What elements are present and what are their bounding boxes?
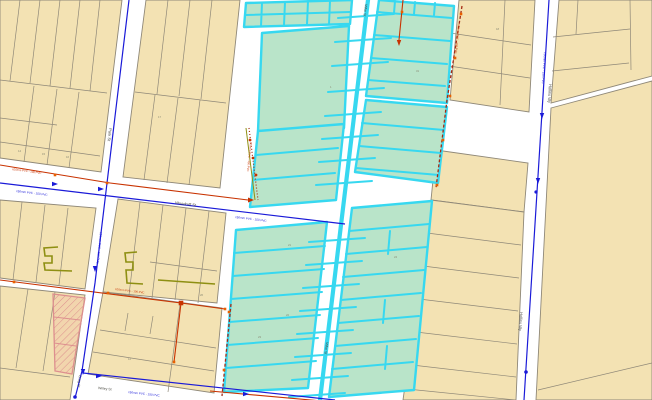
lot-number: 26	[200, 293, 204, 297]
valve-marker	[106, 182, 109, 185]
valve-marker	[436, 184, 439, 187]
valve-marker	[13, 281, 16, 284]
hydrant-marker	[255, 174, 258, 177]
valve-marker	[173, 361, 176, 364]
lot-number: 21	[288, 243, 292, 247]
map-viewport: Park St Woodruff St Craig St Wriley St M…	[0, 0, 652, 400]
valve-marker	[223, 369, 226, 372]
lot-number: 22	[286, 313, 290, 317]
lot-number: 12	[128, 357, 132, 361]
lot-number: 24	[394, 255, 398, 259]
pipe-node	[73, 395, 77, 399]
valve-marker	[228, 311, 231, 314]
hydrant-marker	[249, 139, 252, 142]
valve-marker	[449, 95, 452, 98]
valve-marker	[224, 308, 227, 311]
parcel-block-top-left[interactable]	[0, 0, 122, 172]
valve-marker	[442, 139, 445, 142]
parcel-block-mid-left[interactable]	[0, 200, 96, 289]
pipe-node	[524, 370, 528, 374]
lot-number: 16	[66, 155, 70, 159]
parcel-block-right-upper[interactable]	[450, 0, 535, 112]
lot-number: 31	[416, 69, 420, 73]
valve-marker	[401, 11, 404, 14]
valve-marker	[54, 174, 57, 177]
parcel-block-east-large[interactable]	[536, 81, 652, 400]
valve-marker	[460, 13, 463, 16]
valve-marker	[107, 292, 110, 295]
lot-number: 14	[18, 149, 22, 153]
lot-number: 18	[496, 27, 500, 31]
lot-number: 17	[158, 115, 162, 119]
valve-marker	[454, 57, 457, 60]
lot-number: 23	[258, 335, 262, 339]
gis-map-canvas[interactable]: Park St Woodruff St Craig St Wriley St M…	[0, 0, 652, 400]
lot-number: 15	[42, 152, 46, 156]
valve-marker-large	[179, 301, 184, 306]
green-block-west-rows[interactable]	[250, 124, 344, 207]
pipe-node	[534, 190, 537, 193]
